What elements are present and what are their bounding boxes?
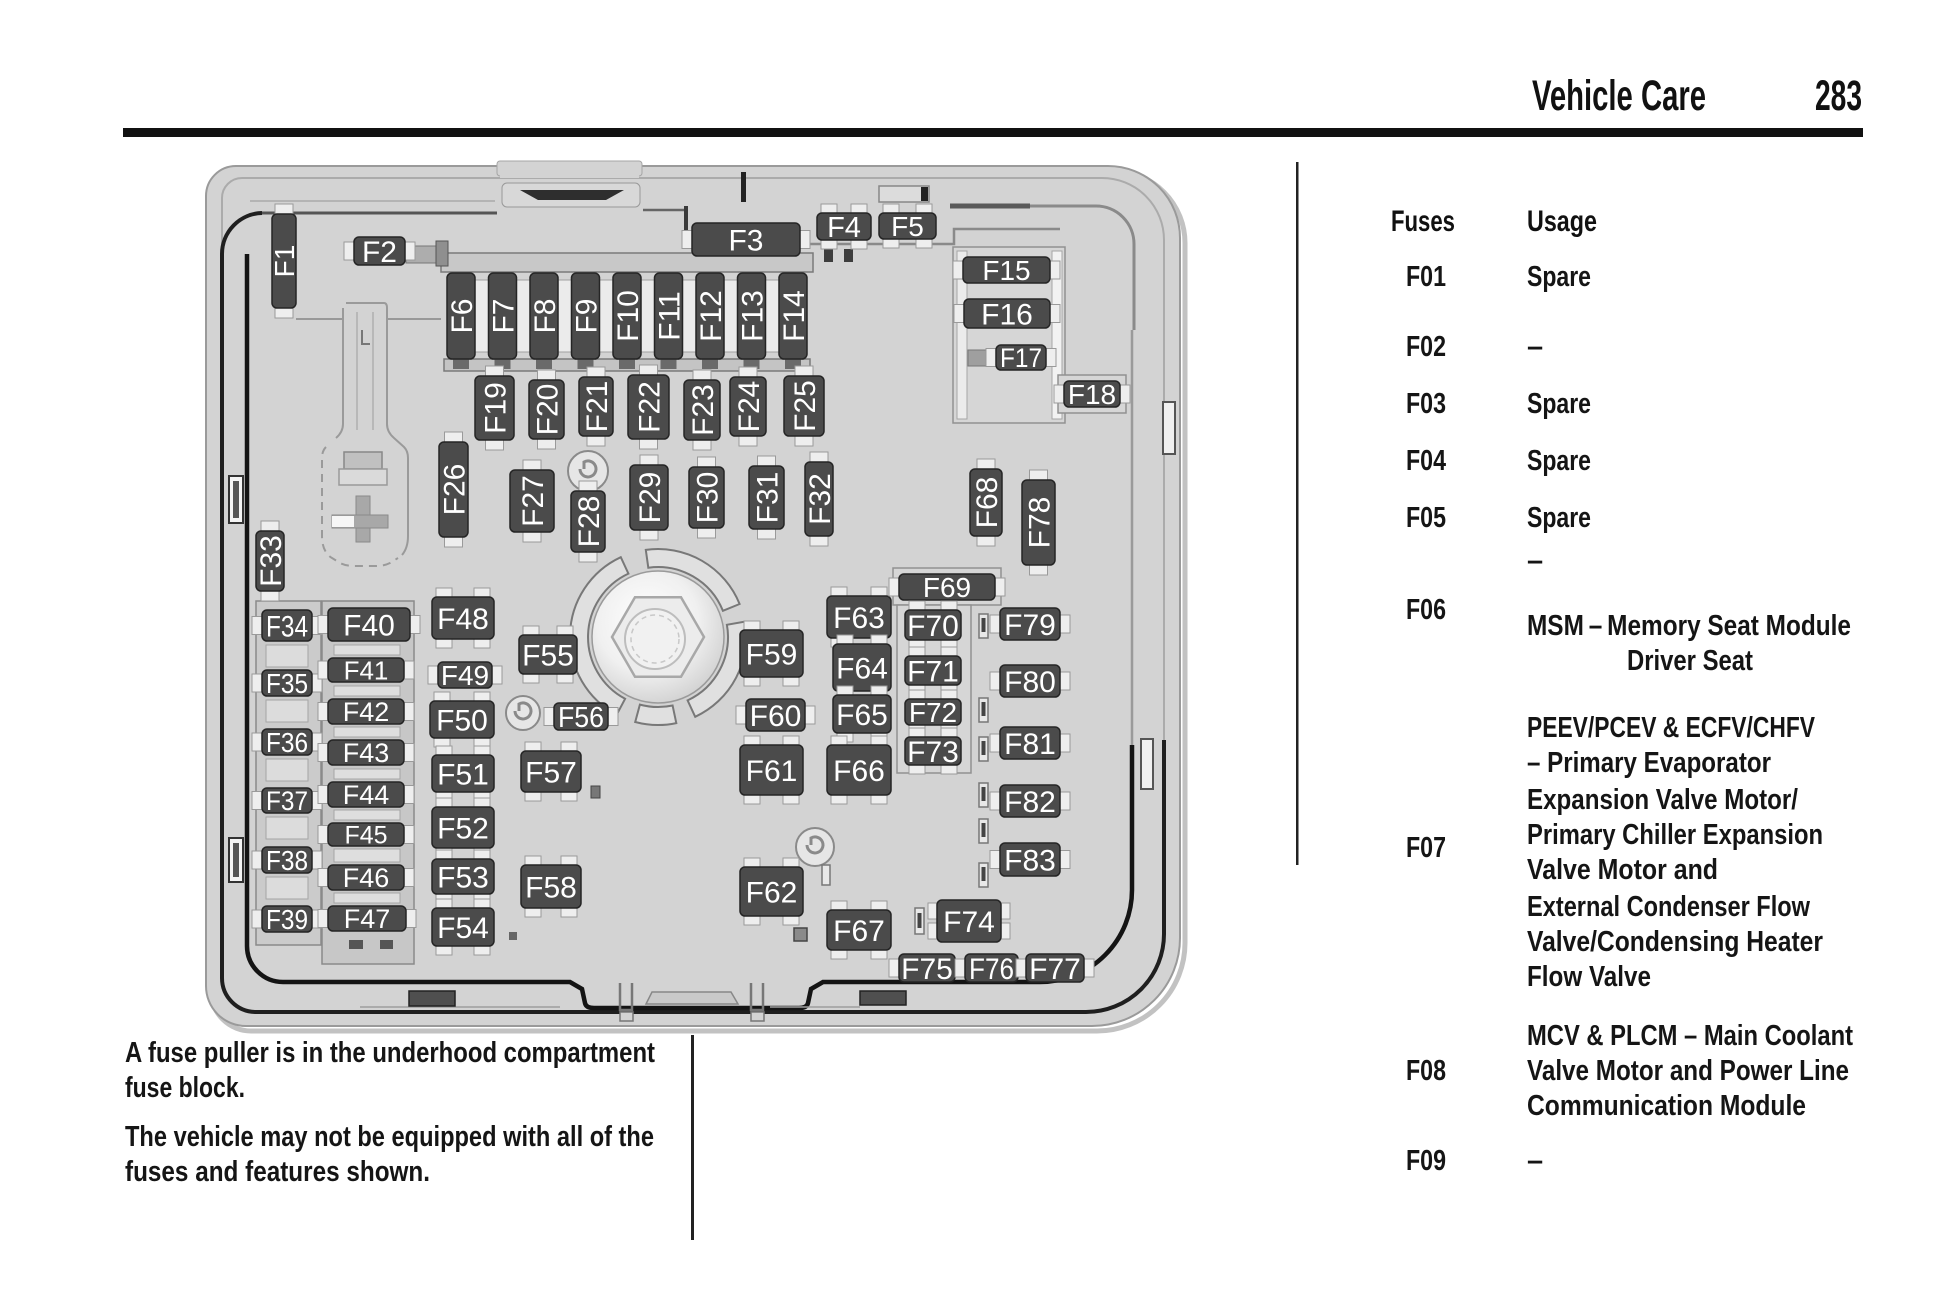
svg-text:F59: F59: [746, 638, 798, 671]
svg-text:F72: F72: [909, 697, 957, 728]
svg-text:F12: F12: [695, 290, 728, 342]
svg-text:F20: F20: [531, 384, 564, 436]
svg-text:F5: F5: [891, 211, 924, 242]
svg-text:F67: F67: [833, 915, 885, 948]
svg-text:Communication Module: Communication Module: [1527, 1090, 1806, 1122]
svg-text:MSM – Memory Seat Module: MSM – Memory Seat Module: [1527, 610, 1851, 642]
svg-text:F11: F11: [653, 291, 686, 340]
svg-text:F27: F27: [517, 475, 550, 527]
svg-text:Primary Chiller Expansion: Primary Chiller Expansion: [1527, 819, 1823, 851]
svg-text:F18: F18: [1068, 379, 1116, 410]
svg-text:F1: F1: [269, 245, 300, 278]
svg-text:F22: F22: [633, 381, 666, 433]
svg-text:F62: F62: [746, 876, 798, 909]
svg-text:F09: F09: [1406, 1145, 1446, 1177]
svg-text:F16: F16: [981, 298, 1033, 331]
svg-text:F68: F68: [971, 477, 1004, 529]
svg-text:F37: F37: [266, 786, 308, 816]
svg-text:F75: F75: [901, 953, 953, 986]
svg-text:A fuse puller is in the underh: A fuse puller is in the underhood compar…: [125, 1037, 655, 1069]
svg-text:F73: F73: [907, 736, 959, 769]
svg-text:F13: F13: [736, 290, 769, 342]
svg-text:F21: F21: [581, 381, 614, 433]
svg-text:F82: F82: [1004, 786, 1056, 819]
svg-text:F77: F77: [1029, 953, 1081, 986]
svg-text:F15: F15: [982, 255, 1030, 286]
svg-text:–: –: [1527, 1145, 1543, 1177]
svg-text:F55: F55: [522, 639, 574, 672]
svg-text:F14: F14: [778, 290, 811, 342]
svg-text:Expansion Valve Motor/: Expansion Valve Motor/: [1527, 784, 1798, 816]
svg-text:Flow Valve: Flow Valve: [1527, 961, 1651, 993]
svg-text:F56: F56: [558, 702, 604, 734]
svg-text:Spare: Spare: [1527, 445, 1591, 477]
svg-text:F53: F53: [437, 861, 489, 894]
svg-text:F30: F30: [691, 472, 724, 524]
svg-text:F9: F9: [570, 298, 603, 333]
svg-text:F61: F61: [746, 755, 798, 788]
svg-text:– Primary Evaporator: – Primary Evaporator: [1527, 747, 1771, 779]
svg-text:F78: F78: [1023, 497, 1056, 549]
svg-text:F35: F35: [266, 668, 308, 699]
svg-text:Spare: Spare: [1527, 502, 1591, 534]
svg-text:F17: F17: [1000, 343, 1042, 373]
svg-text:F34: F34: [266, 610, 308, 643]
svg-text:F65: F65: [836, 699, 888, 732]
svg-text:F57: F57: [525, 756, 577, 789]
svg-text:Valve/Condensing Heater: Valve/Condensing Heater: [1527, 926, 1823, 958]
svg-text:fuses and features shown.: fuses and features shown.: [125, 1156, 430, 1188]
svg-text:F71: F71: [907, 655, 959, 688]
svg-text:F38: F38: [266, 845, 308, 876]
svg-text:Vehicle Care: Vehicle Care: [1532, 72, 1706, 120]
svg-text:F04: F04: [1406, 445, 1446, 477]
svg-text:F01: F01: [1406, 261, 1446, 293]
svg-text:F74: F74: [943, 906, 995, 939]
svg-text:Fuses: Fuses: [1391, 205, 1455, 238]
svg-text:Spare: Spare: [1527, 388, 1591, 420]
svg-text:Spare: Spare: [1527, 261, 1591, 293]
svg-text:F48: F48: [437, 603, 489, 636]
svg-text:Valve Motor and: Valve Motor and: [1527, 854, 1718, 886]
svg-text:F25: F25: [789, 380, 822, 432]
svg-text:F43: F43: [343, 738, 390, 768]
svg-text:F02: F02: [1406, 331, 1446, 363]
svg-text:F47: F47: [344, 904, 391, 934]
svg-text:F76: F76: [969, 953, 1014, 986]
svg-text:F31: F31: [751, 472, 784, 524]
svg-text:External Condenser Flow: External Condenser Flow: [1527, 891, 1810, 923]
svg-text:F83: F83: [1004, 844, 1056, 877]
svg-text:F19: F19: [479, 382, 512, 434]
svg-text:F3: F3: [728, 224, 763, 257]
svg-text:F7: F7: [487, 298, 520, 333]
svg-text:F24: F24: [733, 381, 766, 433]
svg-text:F45: F45: [344, 822, 387, 850]
svg-text:F33: F33: [255, 535, 288, 587]
svg-text:F03: F03: [1406, 388, 1446, 420]
svg-text:F32: F32: [804, 473, 837, 525]
svg-text:fuse block.: fuse block.: [125, 1072, 245, 1104]
svg-text:F28: F28: [573, 496, 606, 548]
svg-text:F52: F52: [437, 812, 489, 845]
svg-text:F81: F81: [1004, 728, 1056, 761]
svg-text:F10: F10: [612, 290, 645, 342]
svg-text:F40: F40: [343, 609, 395, 642]
svg-text:Driver Seat: Driver Seat: [1627, 645, 1753, 677]
svg-text:F8: F8: [529, 298, 562, 333]
svg-text:F50: F50: [436, 704, 488, 737]
svg-text:–: –: [1527, 331, 1543, 363]
svg-text:F39: F39: [266, 904, 308, 935]
svg-text:Valve Motor and Power Line: Valve Motor and Power Line: [1527, 1055, 1849, 1087]
svg-text:F6: F6: [446, 298, 479, 333]
svg-text:F05: F05: [1406, 502, 1446, 534]
svg-text:F08: F08: [1406, 1055, 1446, 1087]
svg-text:F49: F49: [441, 660, 489, 691]
svg-text:283: 283: [1815, 72, 1862, 120]
svg-text:F79: F79: [1004, 609, 1056, 642]
svg-text:F64: F64: [836, 652, 888, 685]
svg-text:–: –: [1527, 545, 1543, 577]
svg-text:F41: F41: [344, 655, 389, 685]
svg-text:F60: F60: [750, 700, 802, 733]
svg-text:F70: F70: [907, 610, 959, 643]
svg-text:MCV & PLCM – Main Coolant: MCV & PLCM – Main Coolant: [1527, 1020, 1853, 1052]
svg-text:The vehicle may not be equippe: The vehicle may not be equipped with all…: [125, 1121, 654, 1153]
svg-text:F46: F46: [343, 863, 390, 893]
svg-text:F80: F80: [1004, 666, 1056, 699]
svg-text:F42: F42: [343, 697, 390, 727]
svg-text:F69: F69: [923, 572, 971, 603]
svg-text:F29: F29: [634, 472, 667, 524]
svg-text:F44: F44: [343, 780, 390, 810]
svg-text:F51: F51: [437, 758, 489, 791]
svg-text:F06: F06: [1406, 594, 1446, 626]
svg-text:F2: F2: [362, 236, 397, 269]
svg-text:Usage: Usage: [1527, 205, 1597, 238]
svg-text:F58: F58: [525, 871, 577, 904]
svg-text:F23: F23: [687, 384, 720, 436]
svg-text:F36: F36: [266, 727, 308, 758]
svg-text:F54: F54: [437, 912, 489, 945]
svg-text:F63: F63: [833, 602, 885, 635]
svg-text:F4: F4: [827, 212, 861, 244]
svg-text:F26: F26: [438, 464, 471, 516]
svg-text:PEEV/PCEV & ECFV/CHFV: PEEV/PCEV & ECFV/CHFV: [1527, 712, 1816, 744]
svg-text:F07: F07: [1406, 832, 1446, 864]
svg-text:F66: F66: [833, 755, 885, 788]
